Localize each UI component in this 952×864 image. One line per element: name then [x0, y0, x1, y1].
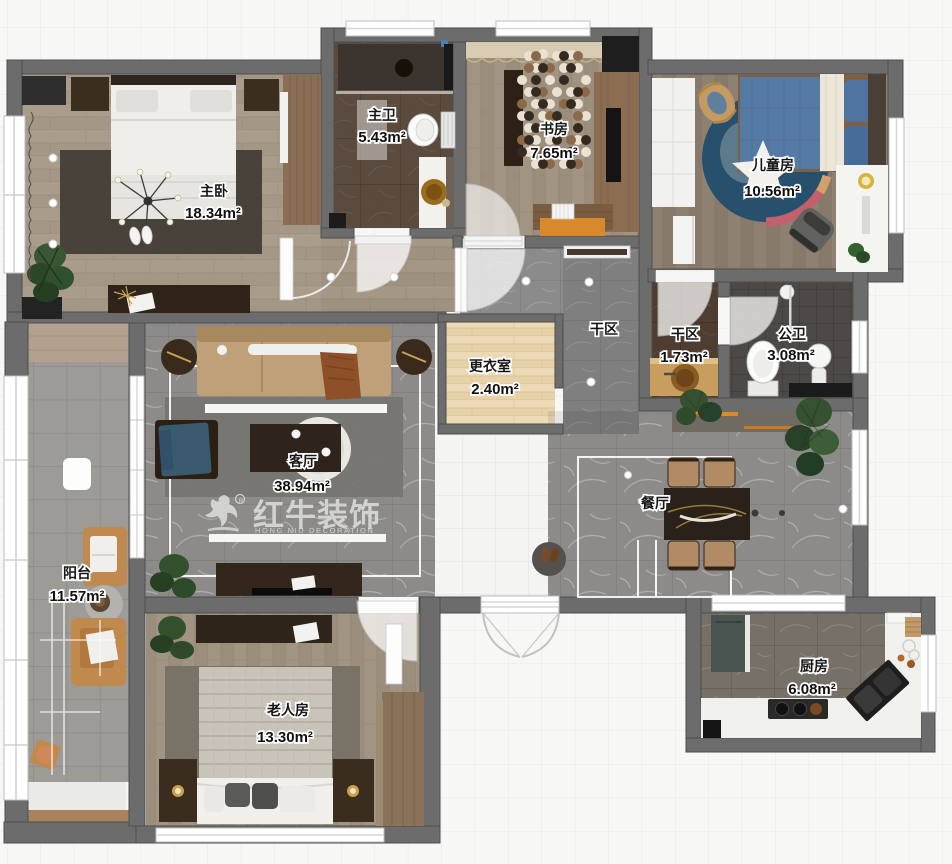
svg-text:1.73m²: 1.73m² [660, 349, 708, 366]
svg-text:R: R [239, 498, 244, 505]
svg-text:阳台: 阳台 [63, 565, 91, 581]
svg-text:公卫: 公卫 [778, 326, 806, 342]
svg-text:6.08m²: 6.08m² [788, 681, 836, 698]
svg-text:HONG NIU DECORATION: HONG NIU DECORATION [255, 526, 374, 535]
svg-text:13.30m²: 13.30m² [257, 729, 313, 746]
svg-text:老人房: 老人房 [267, 702, 309, 718]
svg-text:主卫: 主卫 [368, 107, 396, 123]
svg-text:儿童房: 儿童房 [751, 157, 794, 173]
svg-text:客厅: 客厅 [288, 453, 317, 469]
svg-text:3.08m²: 3.08m² [767, 347, 815, 364]
svg-text:干区: 干区 [590, 321, 618, 337]
svg-text:7.65m²: 7.65m² [530, 145, 578, 162]
svg-text:干区: 干区 [671, 326, 699, 342]
svg-text:更衣室: 更衣室 [469, 358, 511, 374]
svg-text:18.34m²: 18.34m² [185, 205, 241, 222]
svg-text:主卧: 主卧 [200, 183, 228, 199]
svg-text:10.56m²: 10.56m² [744, 183, 800, 200]
svg-text:书房: 书房 [540, 121, 568, 137]
svg-text:厨房: 厨房 [800, 658, 828, 674]
svg-text:38.94m²: 38.94m² [274, 478, 330, 495]
svg-text:餐厅: 餐厅 [640, 495, 669, 511]
svg-text:5.43m²: 5.43m² [358, 129, 406, 146]
svg-text:11.57m²: 11.57m² [49, 588, 104, 605]
svg-text:2.40m²: 2.40m² [471, 381, 519, 398]
